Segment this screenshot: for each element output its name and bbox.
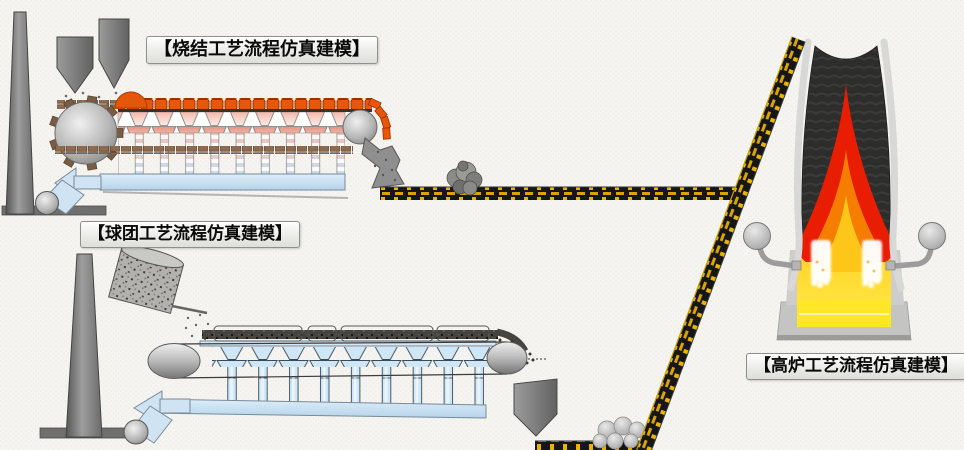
belt-drum-right xyxy=(487,342,527,374)
sinter-section-label-button[interactable]: 【烧结工艺流程仿真建模】 xyxy=(146,36,378,64)
pallet-return-line xyxy=(55,146,353,154)
simulation-canvas: 【烧结工艺流程仿真建模】 【球团工艺流程仿真建模】 【高炉工艺流程仿真建模】 xyxy=(0,0,964,450)
furnace-base-edge xyxy=(777,335,911,340)
sinter-windboxes xyxy=(118,112,345,175)
tuyere-sphere-left xyxy=(744,223,771,250)
pellet-section-label-button[interactable]: 【球团工艺流程仿真建模】 xyxy=(80,221,300,248)
exhaust-fan-drum xyxy=(36,192,59,215)
pellet-windboxes xyxy=(200,341,496,407)
blast-furnace-section-label-button[interactable]: 【高炉工艺流程仿真建模】 xyxy=(746,353,964,380)
tuyere-sphere-right xyxy=(919,223,946,250)
belt-drum-left xyxy=(148,344,200,379)
exhaust-fan-drum xyxy=(124,420,148,444)
product-conveyor xyxy=(380,187,738,200)
